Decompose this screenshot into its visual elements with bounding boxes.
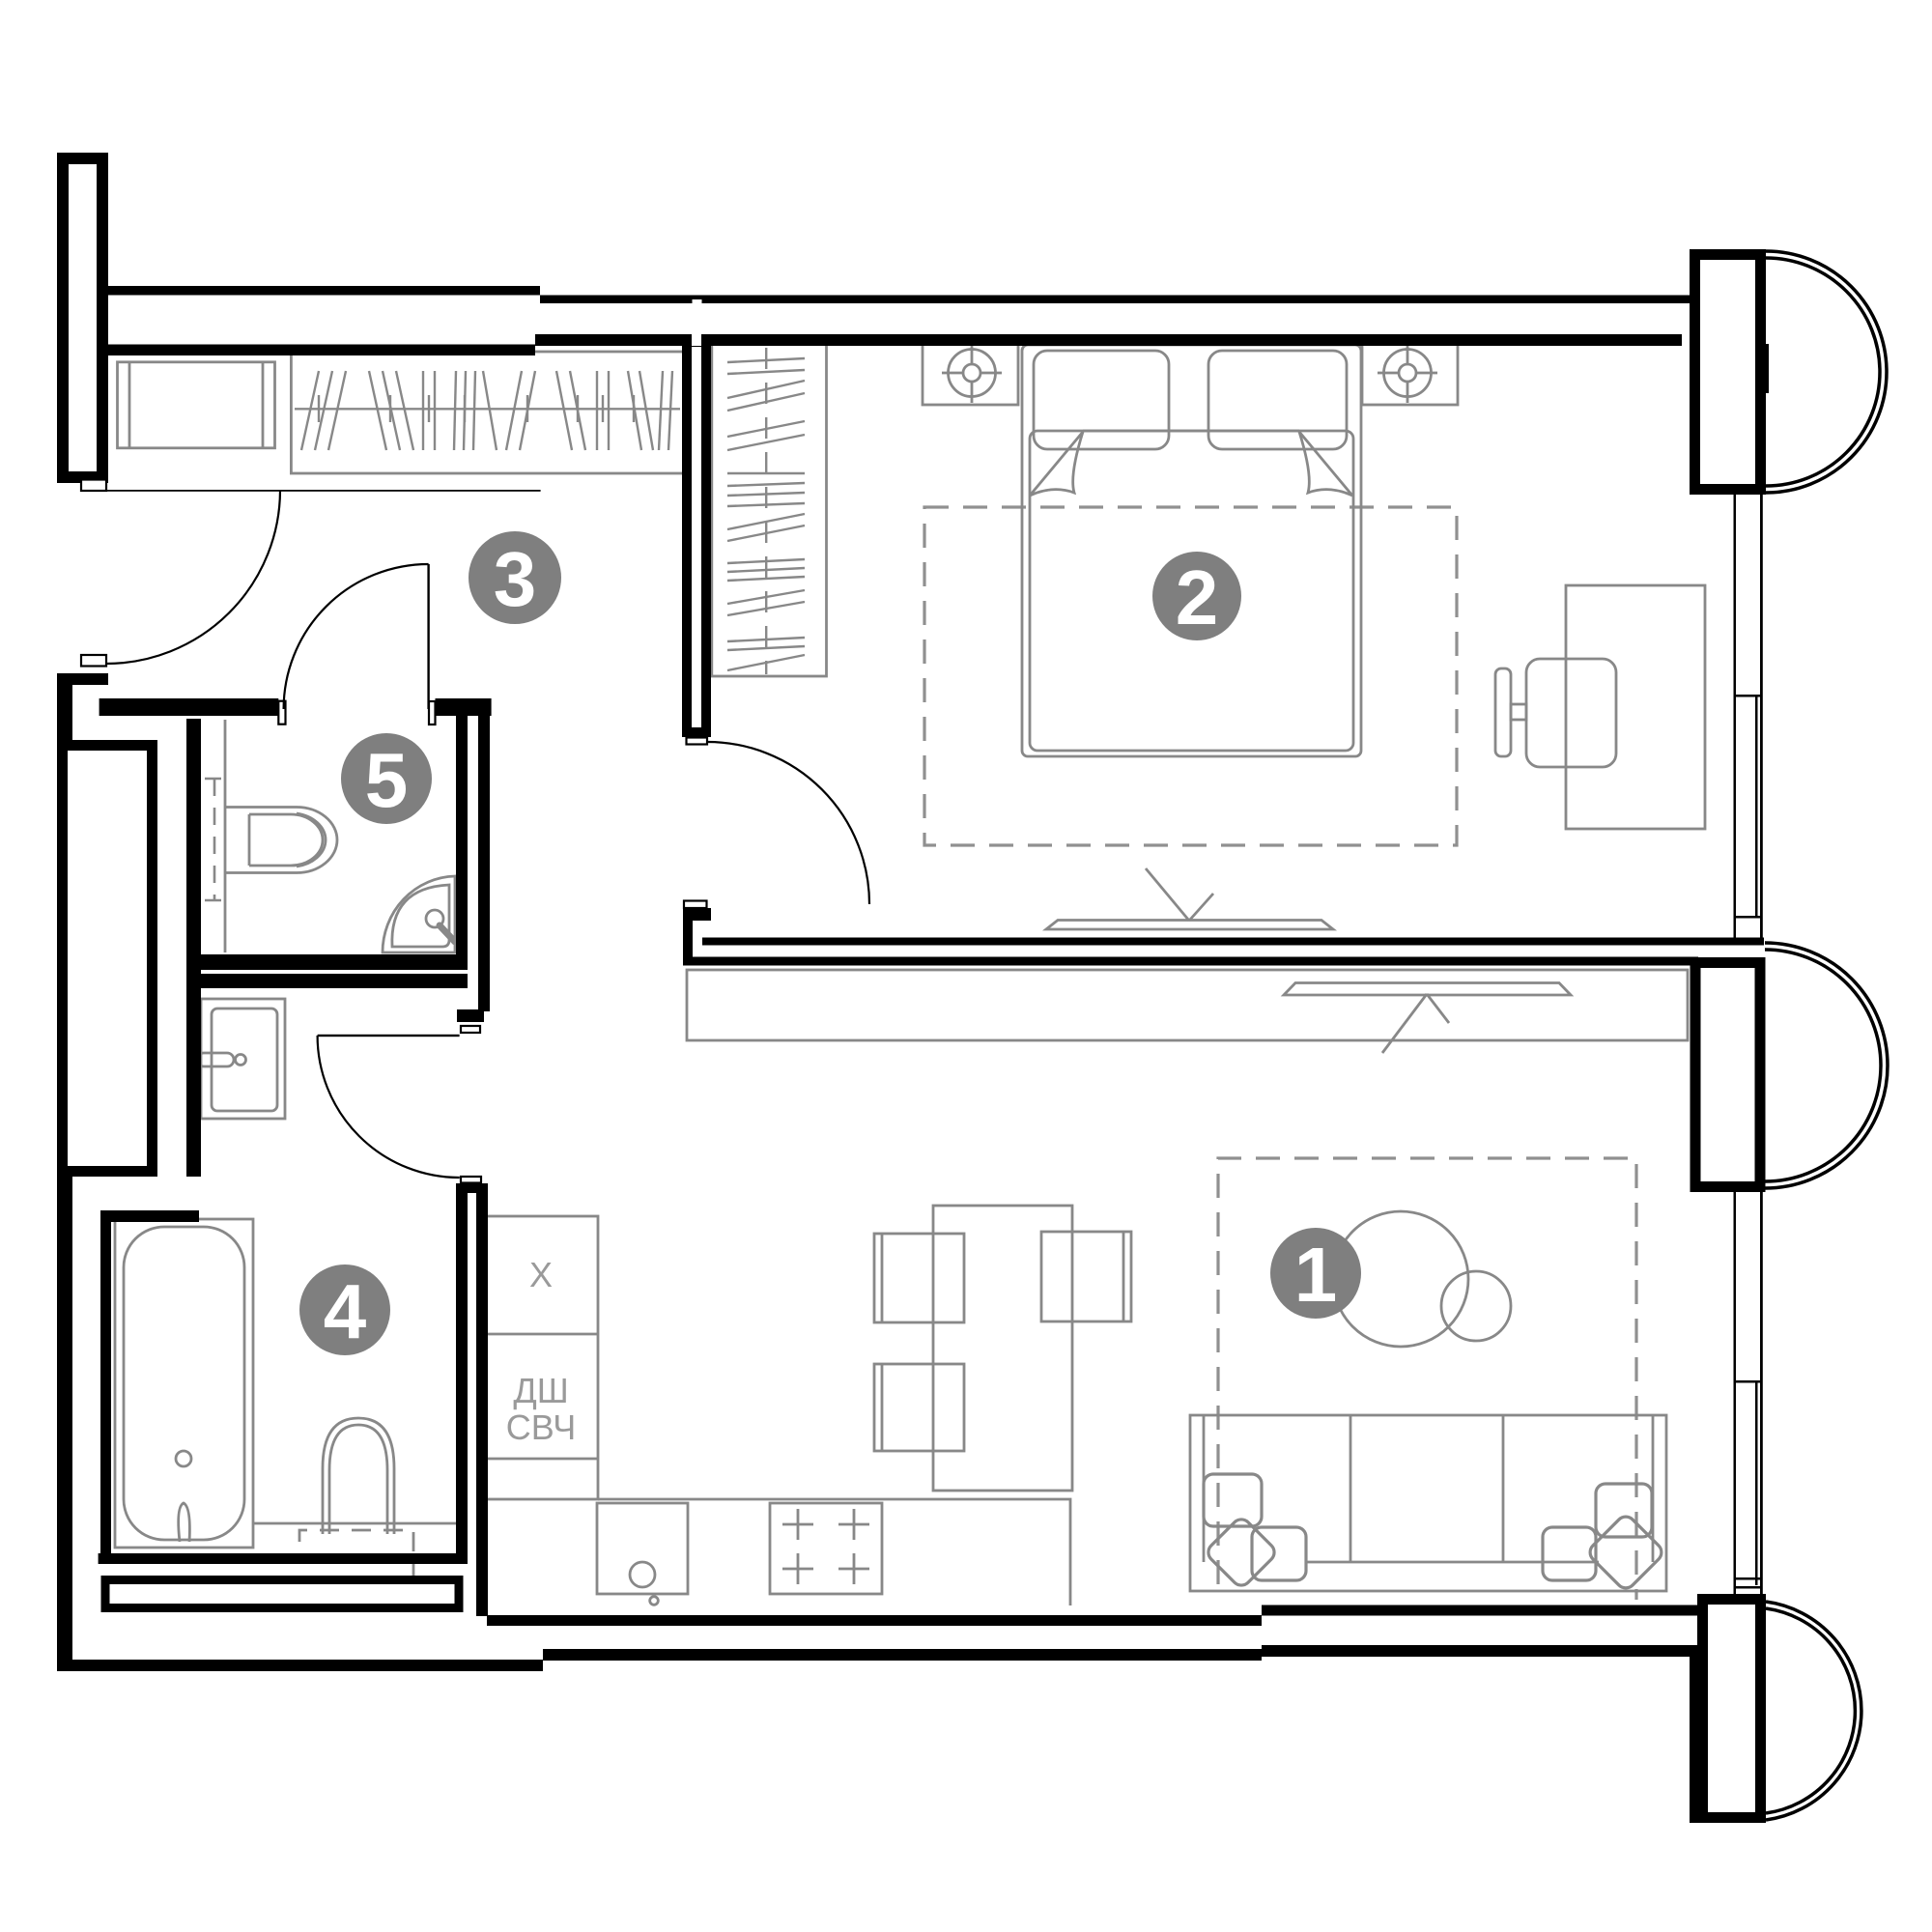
svg-text:X: X — [529, 1255, 553, 1294]
svg-text:1: 1 — [1294, 1232, 1338, 1318]
svg-text:3: 3 — [494, 536, 537, 622]
svg-text:ДШ: ДШ — [513, 1371, 568, 1410]
svg-text:СВЧ: СВЧ — [506, 1407, 576, 1447]
svg-text:5: 5 — [365, 737, 409, 823]
svg-text:4: 4 — [324, 1268, 367, 1354]
svg-text:2: 2 — [1176, 554, 1219, 640]
